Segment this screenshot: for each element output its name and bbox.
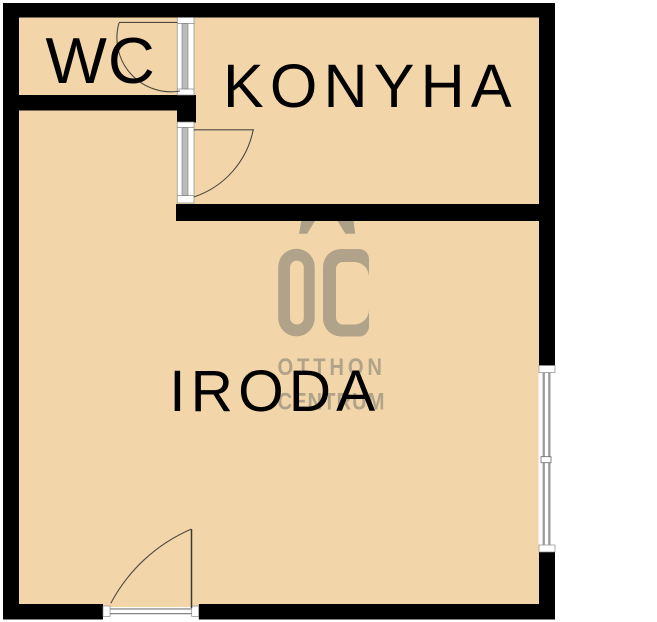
svg-text:KONYHA: KONYHA — [223, 52, 518, 120]
svg-text:IRODA: IRODA — [169, 359, 380, 424]
svg-text:WC: WC — [46, 24, 156, 97]
